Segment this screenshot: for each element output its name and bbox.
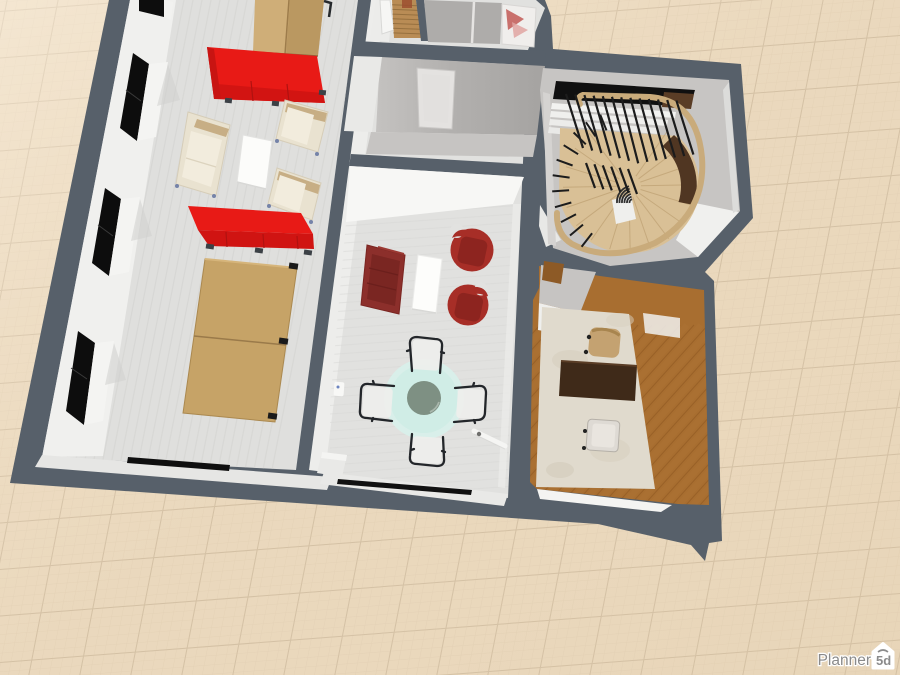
svg-text:5d: 5d [876,653,891,668]
svg-text:Planner: Planner [818,652,871,669]
